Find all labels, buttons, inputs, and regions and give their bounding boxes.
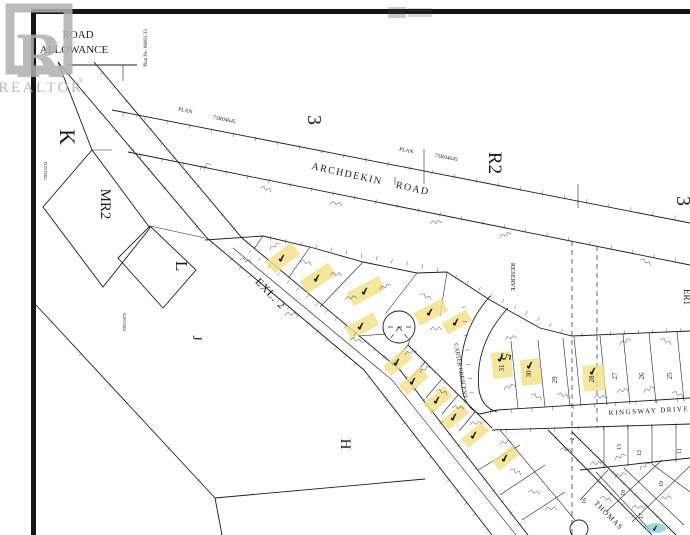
frame-top-border — [36, 9, 690, 14]
lot-number-28: 28 — [588, 375, 596, 383]
lot-number-30: 30 — [525, 370, 533, 378]
plan-number-vertical: Plan No. 86603 33 — [144, 29, 149, 67]
parcel-h: H — [337, 439, 353, 450]
lot-number-16: 16 — [582, 498, 588, 504]
lot-number-29: 29 — [551, 376, 559, 384]
lot-number-17: 17 — [639, 513, 645, 519]
parcel-j: J — [190, 335, 205, 340]
lot-number-11: 11 — [677, 448, 683, 454]
lot-number-26: 26 — [638, 372, 646, 380]
lot-number-25: 25 — [666, 372, 674, 380]
lot-number-19: 19 — [659, 481, 665, 487]
lot-number-27: 27 — [611, 372, 619, 380]
border-smudge — [388, 7, 406, 18]
realtor-wordmark: REALTOR — [0, 80, 84, 96]
lot-number-18: 18 — [621, 490, 627, 496]
registered-trademark-icon: ® — [78, 77, 86, 85]
lot-number-2: 2 — [570, 438, 576, 441]
er1: ER1 — [682, 289, 690, 305]
border-smudge-2 — [408, 8, 432, 17]
section-3-west: 3 — [303, 115, 325, 125]
survey-plat-map: ✔✔✔✔✔✔✔✔✔✔✔✔✔✔✔✔ ROADALLOWANCEPlan No. 8… — [0, 0, 690, 535]
plan-small-west: 72B15234 — [43, 161, 48, 181]
lot-number-31: 31 — [498, 364, 506, 372]
map-paper — [0, 0, 690, 535]
section-3-east: 3 — [672, 196, 690, 206]
zone-r2: R2 — [484, 152, 505, 174]
reserve: RESERVE — [509, 263, 516, 291]
parcel-l: L — [172, 261, 191, 271]
plat-map-screenshot: ✔✔✔✔✔✔✔✔✔✔✔✔✔✔✔✔ ROADALLOWANCEPlan No. 8… — [0, 0, 690, 535]
plan-small-mid: 92B15976 — [122, 312, 127, 332]
lot-number-12: 12 — [637, 450, 643, 456]
parcel-mr2: MR2 — [97, 189, 113, 220]
lot-number-13: 13 — [617, 444, 623, 450]
parcel-k: K — [55, 129, 80, 145]
